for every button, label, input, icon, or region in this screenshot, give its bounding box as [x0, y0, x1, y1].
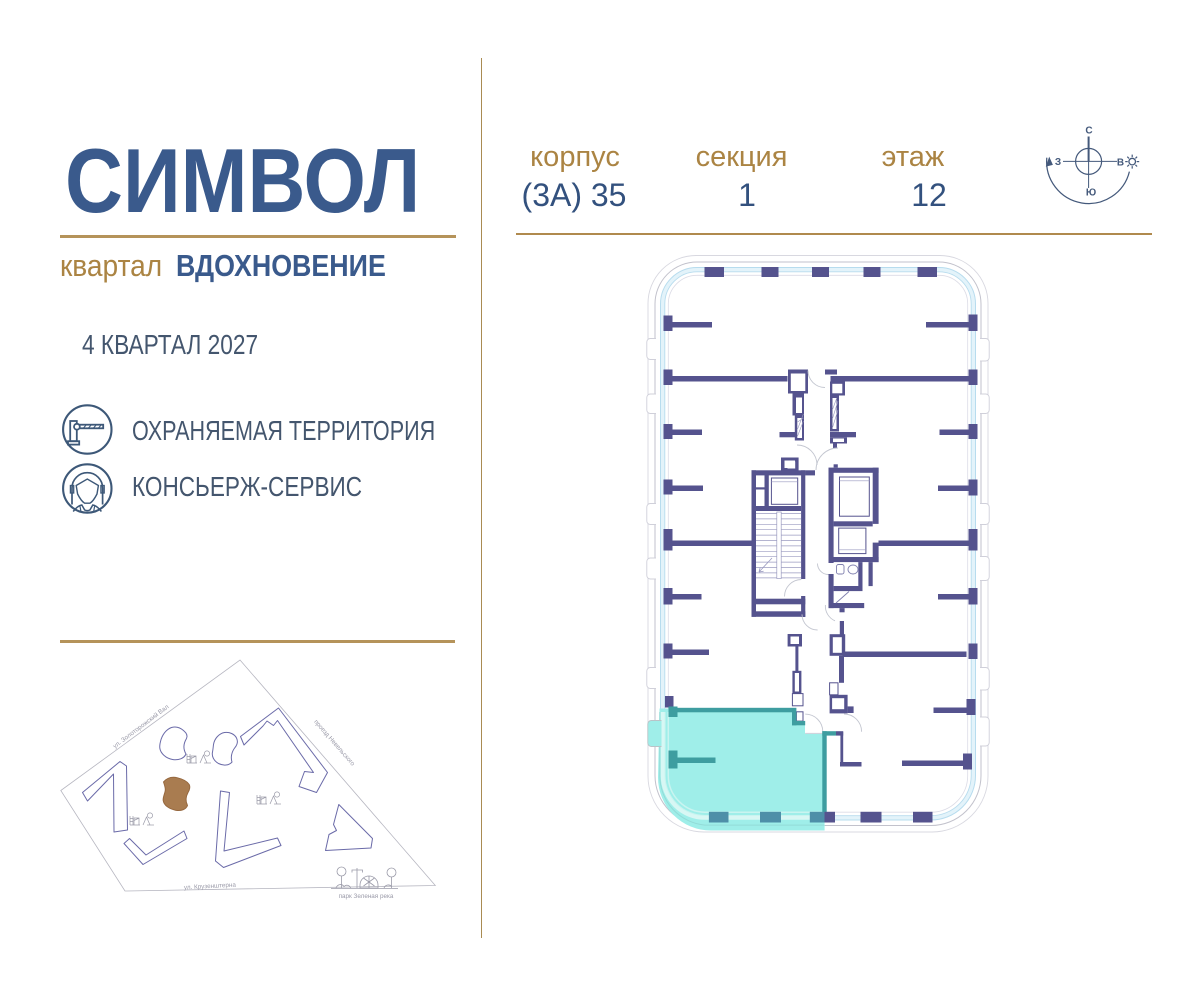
svg-text:В: В [1117, 158, 1124, 169]
svg-text:С: С [1085, 126, 1092, 137]
svg-text:парк Зеленая река: парк Зеленая река [339, 893, 394, 900]
svg-text:З: З [1055, 157, 1061, 168]
svg-text:Ю: Ю [1086, 188, 1096, 199]
svg-text:ул. Крузенштерна: ул. Крузенштерна [184, 882, 237, 892]
